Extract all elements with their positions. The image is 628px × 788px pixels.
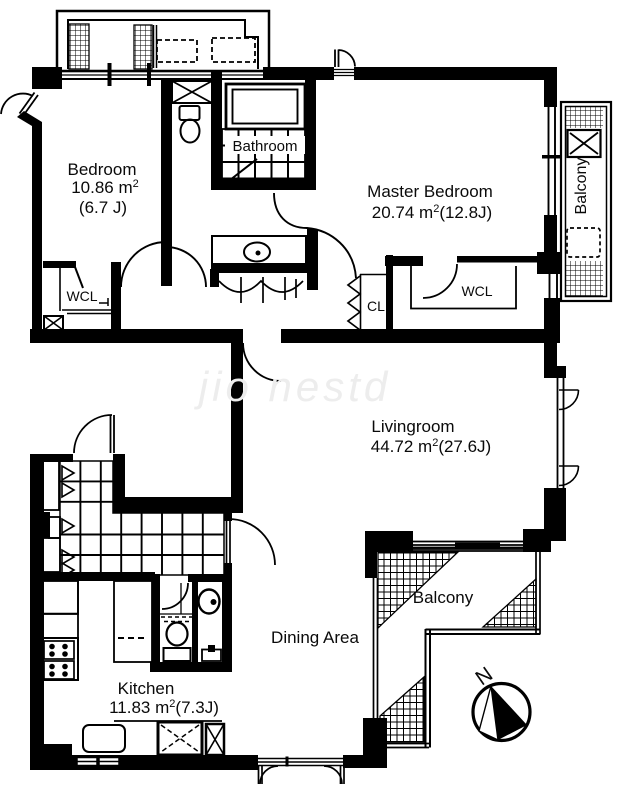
svg-text:jio nestd: jio nestd	[194, 363, 391, 410]
svg-text:Balcony: Balcony	[413, 588, 474, 607]
svg-text:20.74 m2(12.8J): 20.74 m2(12.8J)	[372, 203, 492, 222]
svg-text:Balcony: Balcony	[573, 158, 590, 215]
svg-text:44.72 m2(27.6J): 44.72 m2(27.6J)	[371, 437, 491, 456]
svg-text:10.86 m2: 10.86 m2	[71, 178, 139, 197]
svg-text:Master Bedroom: Master Bedroom	[367, 182, 493, 201]
svg-text:11.83 m2(7.3J): 11.83 m2(7.3J)	[109, 698, 219, 717]
svg-text:Kitchen: Kitchen	[118, 679, 175, 698]
svg-text:CL: CL	[367, 298, 385, 314]
svg-text:Bedroom: Bedroom	[68, 160, 137, 179]
svg-text:Bathroom: Bathroom	[232, 138, 297, 155]
svg-text:Livingroom: Livingroom	[371, 417, 454, 436]
svg-text:Dining Area: Dining Area	[271, 628, 359, 647]
svg-text:(6.7 J): (6.7 J)	[79, 198, 127, 217]
svg-text:WCL: WCL	[461, 283, 492, 299]
svg-text:WCL: WCL	[66, 288, 97, 304]
